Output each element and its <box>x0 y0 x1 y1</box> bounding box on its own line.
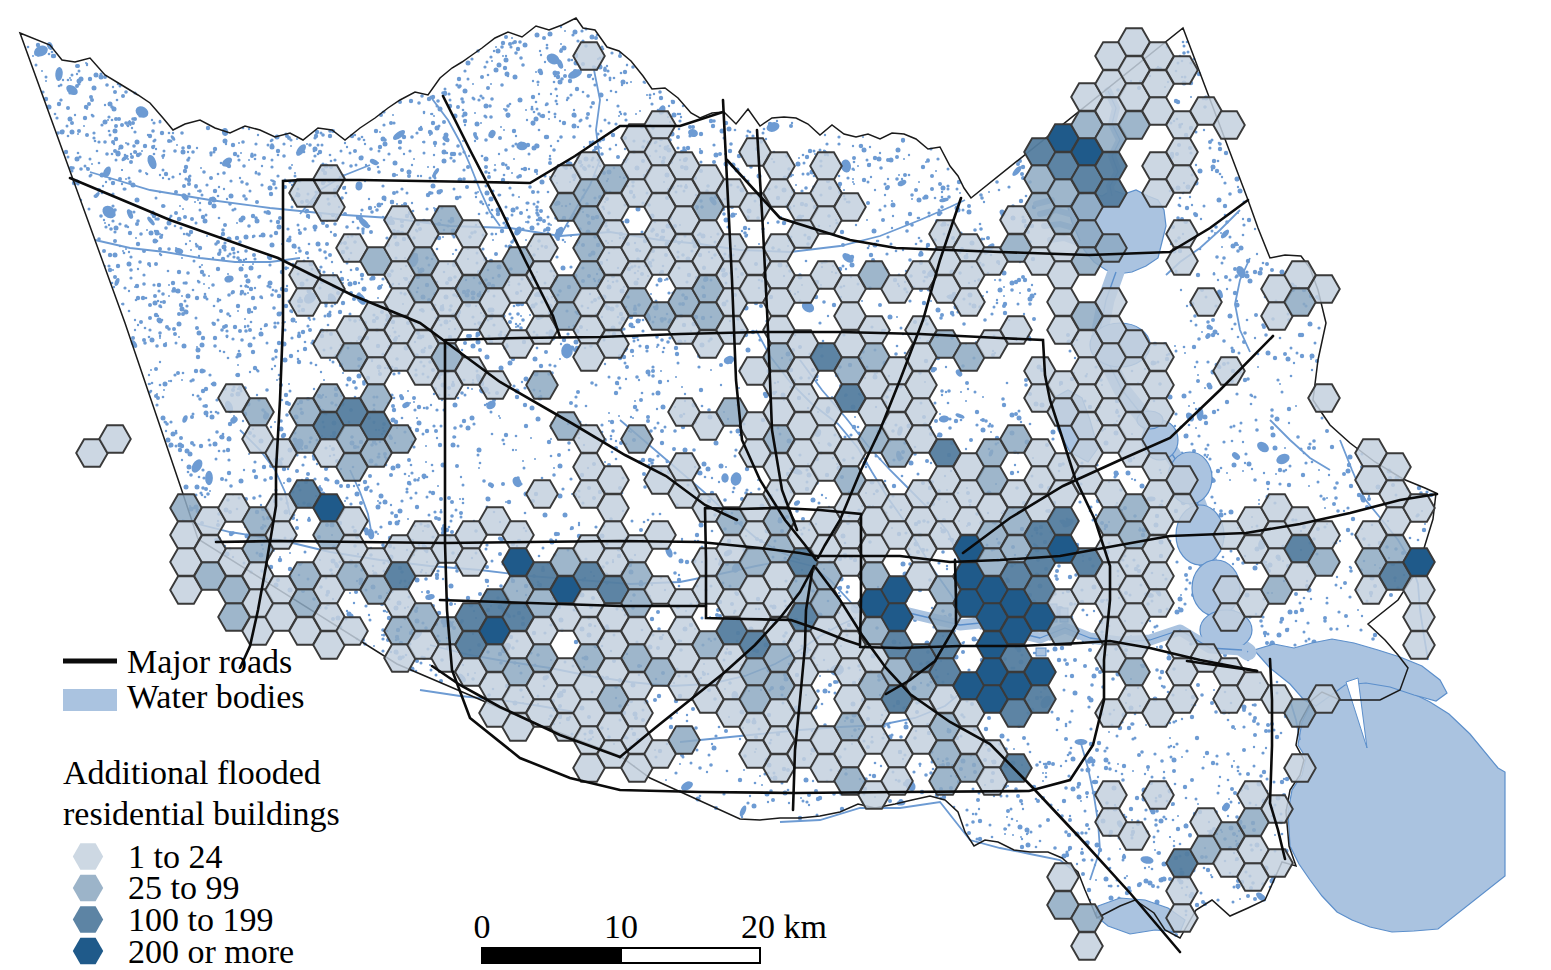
svg-text:20 km: 20 km <box>741 908 827 945</box>
svg-text:Major roads: Major roads <box>127 643 292 680</box>
svg-text:0: 0 <box>474 908 491 945</box>
svg-text:10: 10 <box>604 908 638 945</box>
svg-text:200 or more: 200 or more <box>128 933 294 970</box>
svg-text:residential buildings: residential buildings <box>63 795 340 832</box>
svg-text:Additional flooded: Additional flooded <box>63 754 321 791</box>
svg-text:Water bodies: Water bodies <box>127 678 305 715</box>
